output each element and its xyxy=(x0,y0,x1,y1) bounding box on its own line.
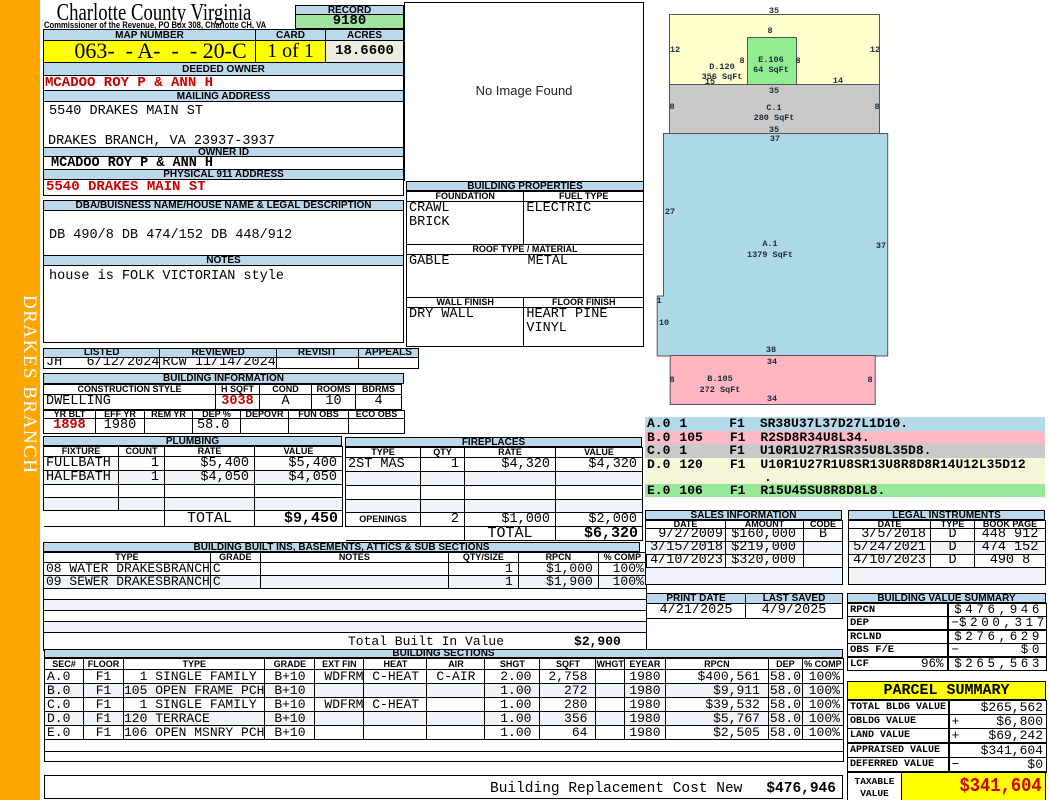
svg-text:64 SqFt: 64 SqFt xyxy=(753,65,789,75)
svg-text:8: 8 xyxy=(669,375,674,385)
svg-text:A.1: A.1 xyxy=(762,239,777,249)
svg-text:12: 12 xyxy=(670,45,680,55)
svg-text:D.120: D.120 xyxy=(709,62,735,72)
svg-text:8: 8 xyxy=(739,56,744,66)
svg-text:34: 34 xyxy=(767,394,777,404)
svg-text:B.105: B.105 xyxy=(707,374,733,384)
svg-text:37: 37 xyxy=(770,134,780,144)
svg-text:C.1: C.1 xyxy=(766,103,781,113)
svg-text:8: 8 xyxy=(795,56,800,66)
svg-text:280 SqFt: 280 SqFt xyxy=(754,113,795,123)
svg-text:272 SqFt: 272 SqFt xyxy=(700,385,741,395)
svg-text:38: 38 xyxy=(766,345,776,355)
svg-text:8: 8 xyxy=(669,102,674,112)
svg-text:1379 SqFt: 1379 SqFt xyxy=(747,250,793,260)
svg-text:10: 10 xyxy=(659,318,669,328)
svg-text:E.106: E.106 xyxy=(758,55,784,65)
svg-text:15: 15 xyxy=(705,77,715,87)
svg-text:14: 14 xyxy=(833,76,843,86)
svg-text:27: 27 xyxy=(665,207,675,217)
svg-text:8: 8 xyxy=(874,102,879,112)
svg-text:8: 8 xyxy=(867,375,872,385)
svg-text:12: 12 xyxy=(870,45,880,55)
svg-text:37: 37 xyxy=(876,241,886,251)
svg-text:35: 35 xyxy=(769,6,779,16)
svg-text:1: 1 xyxy=(656,296,661,306)
svg-text:8: 8 xyxy=(767,26,772,36)
svg-text:35: 35 xyxy=(769,86,779,96)
svg-text:34: 34 xyxy=(767,357,777,367)
